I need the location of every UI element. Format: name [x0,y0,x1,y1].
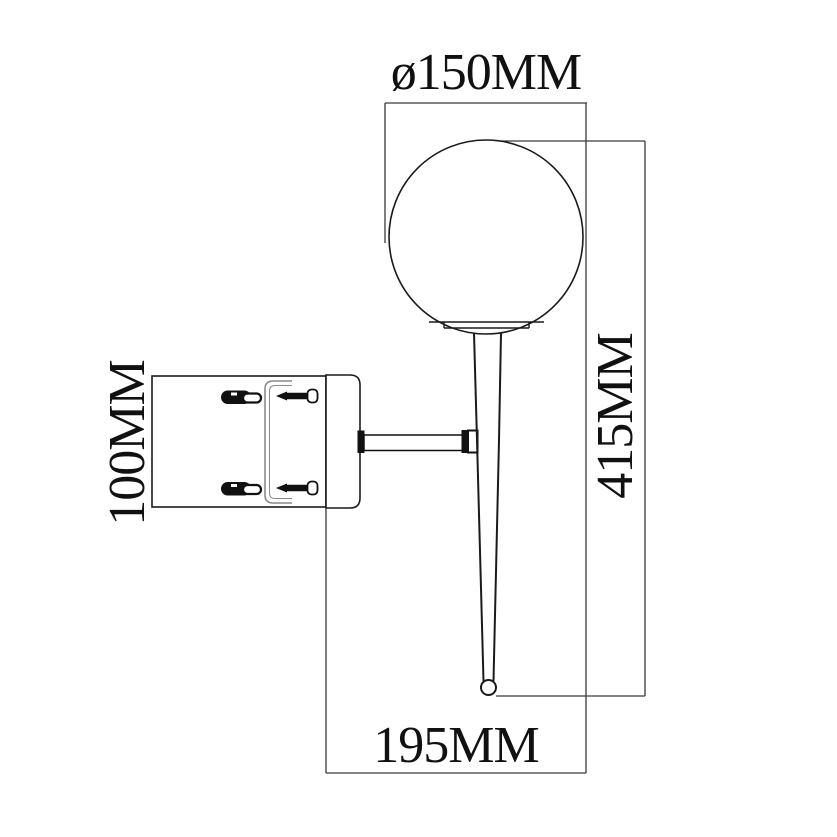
dim-diameter-label: ø150MM [391,47,581,99]
canopy-side-view [326,375,360,508]
dim-backplate-label: 100MM [102,360,154,525]
globe-outline [389,140,583,334]
lamp-arm [358,430,478,453]
dim-height-label: 415MM [590,333,642,498]
dimension-drawing: ø150MM 415MM 100MM 195MM [0,0,837,837]
dim-projection-label: 195MM [373,720,538,772]
cone-tip-ball [481,680,496,695]
keyhole-slot-bottom [221,482,261,496]
keyhole-slot-top [221,391,261,405]
cone-body [474,333,501,681]
